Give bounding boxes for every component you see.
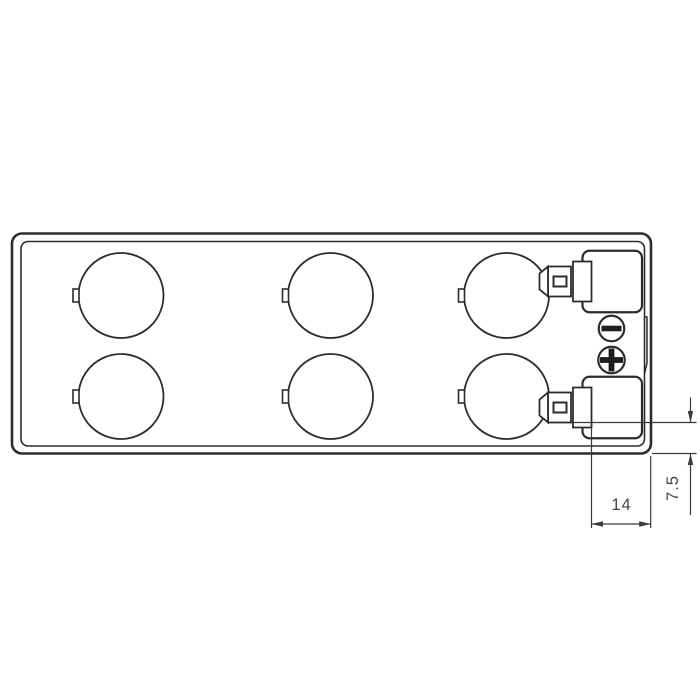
positive-symbol-icon xyxy=(598,347,625,374)
arrow-up-icon xyxy=(688,454,693,466)
dimension-label-7-5: 7.5 xyxy=(664,475,682,501)
dimension-label-14: 14 xyxy=(611,496,631,514)
negative-symbol-icon xyxy=(599,316,625,342)
arrow-left-icon xyxy=(592,521,604,526)
arrow-right-icon xyxy=(639,521,651,526)
battery-top-view-drawing: 14 7.5 xyxy=(0,0,700,700)
drawing-canvas: 14 7.5 xyxy=(0,0,700,700)
arrow-down-icon xyxy=(688,411,693,423)
